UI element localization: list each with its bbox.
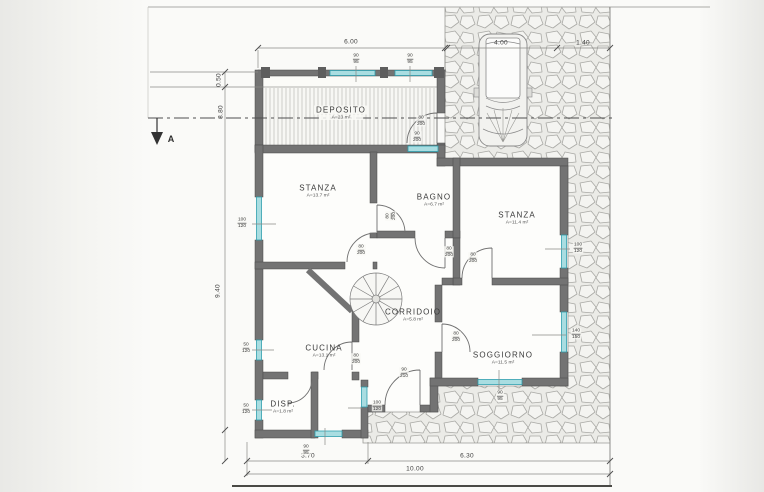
window-size-label: 50120: [241, 403, 251, 415]
door-size-label: 90200: [412, 131, 422, 143]
door-size-label: 80200: [444, 246, 454, 258]
door-size-label: 80200: [416, 115, 426, 127]
window-size-label: 9095: [352, 53, 360, 65]
window-size-label: 50120: [241, 342, 251, 354]
opening-height: 95: [407, 59, 412, 64]
room-name: DISP.: [270, 400, 295, 409]
door-size-label: 80200: [468, 252, 478, 264]
opening-height: 120: [242, 348, 250, 353]
window-size-label: 100120: [573, 242, 583, 254]
room-area: A=6.7 m²: [420, 202, 448, 207]
opening-height: 200: [357, 250, 365, 255]
room-name: SOGGIORNO: [473, 351, 533, 360]
opening-height: 200: [417, 121, 425, 126]
room-area: A=13.1 m²: [309, 353, 340, 358]
room-area: A=1.8 m²: [273, 409, 294, 414]
opening-height: 120: [238, 223, 246, 228]
opening-height: 200: [469, 258, 477, 263]
room-label-cucina: CUCINA A=13.1 m²: [305, 344, 342, 359]
opening-height: 200: [352, 359, 360, 364]
door-size-label: 90210: [399, 367, 409, 379]
section-label: A: [168, 134, 175, 144]
room-label-disp: DISP. A=1.8 m²: [270, 400, 295, 415]
room-label-soggiorno: SOGGIORNO A=11.5 m²: [473, 351, 533, 366]
room-name: STANZA: [498, 211, 536, 220]
window-size-label: 9095: [302, 444, 310, 456]
dimension-label-side-strip: 1.40: [576, 40, 590, 47]
door-size-label: 80200: [351, 353, 361, 365]
room-name: STANZA: [299, 184, 337, 193]
opening-height: 120: [574, 248, 582, 253]
dimension-label-total-height: 9.40: [215, 284, 222, 298]
room-area: A=11.5 m²: [478, 360, 527, 365]
room-label-stanza-2: STANZA A=11.4 m²: [498, 211, 536, 226]
opening-height: 150: [572, 334, 580, 339]
door-size-label: 80200: [356, 244, 366, 256]
dimension-label-inner-height: 8.80: [218, 105, 225, 119]
opening-height: 200: [452, 337, 460, 342]
room-label-deposito: DEPOSITO A=23 m²: [314, 106, 368, 121]
room-name: DEPOSITO: [314, 106, 368, 115]
window-size-label: 100120: [372, 400, 382, 412]
opening-height: 210: [400, 373, 408, 378]
section-arrow-icon: [151, 132, 163, 145]
window-size-label: 9095: [406, 53, 414, 65]
opening-height: 95: [303, 450, 308, 455]
window-size-label: 100120: [237, 217, 247, 229]
dimension-label-carport-width: 4.00: [494, 40, 508, 47]
dimension-label-bottom-right: 6.30: [460, 453, 474, 460]
door-size-label: 80200: [451, 331, 461, 343]
room-area: A=13.7 m²: [303, 193, 334, 198]
room-name: CORRIDOIO: [385, 308, 441, 317]
door-size-label: 80200: [385, 211, 397, 221]
opening-height: 95: [353, 59, 358, 64]
room-area: A=11.4 m²: [502, 220, 533, 225]
room-label-stanza-1: STANZA A=13.7 m²: [299, 184, 337, 199]
dimension-label-deposito-width: 6.00: [344, 39, 358, 46]
room-label-bagno: BAGNO A=6.7 m²: [417, 193, 451, 208]
room-area: A=5.8 m²: [390, 317, 436, 322]
opening-height: 200: [445, 252, 453, 257]
room-name: BAGNO: [417, 193, 451, 202]
dimension-label-canopy-offset: 0.50: [216, 73, 223, 87]
opening-height: 120: [373, 406, 381, 411]
opening-height: 120: [242, 409, 250, 414]
opening-height: 200: [413, 137, 421, 142]
floorplan-drawing: [0, 0, 764, 492]
opening-height: 200: [391, 212, 396, 220]
dimension-label-bottom-total: 10.00: [406, 466, 424, 473]
room-label-corridoio: CORRIDOIO A=5.8 m²: [385, 308, 441, 323]
room-name: CUCINA: [305, 344, 342, 353]
window-size-label: 9095: [496, 390, 504, 402]
window-size-label: 140150: [571, 328, 581, 340]
floorplan-page: DEPOSITO A=23 m² STANZA A=13.7 m² BAGNO …: [0, 0, 764, 492]
opening-height: 95: [497, 396, 502, 401]
car-top-view-icon: [474, 34, 532, 146]
room-area: A=23 m²: [319, 115, 363, 120]
